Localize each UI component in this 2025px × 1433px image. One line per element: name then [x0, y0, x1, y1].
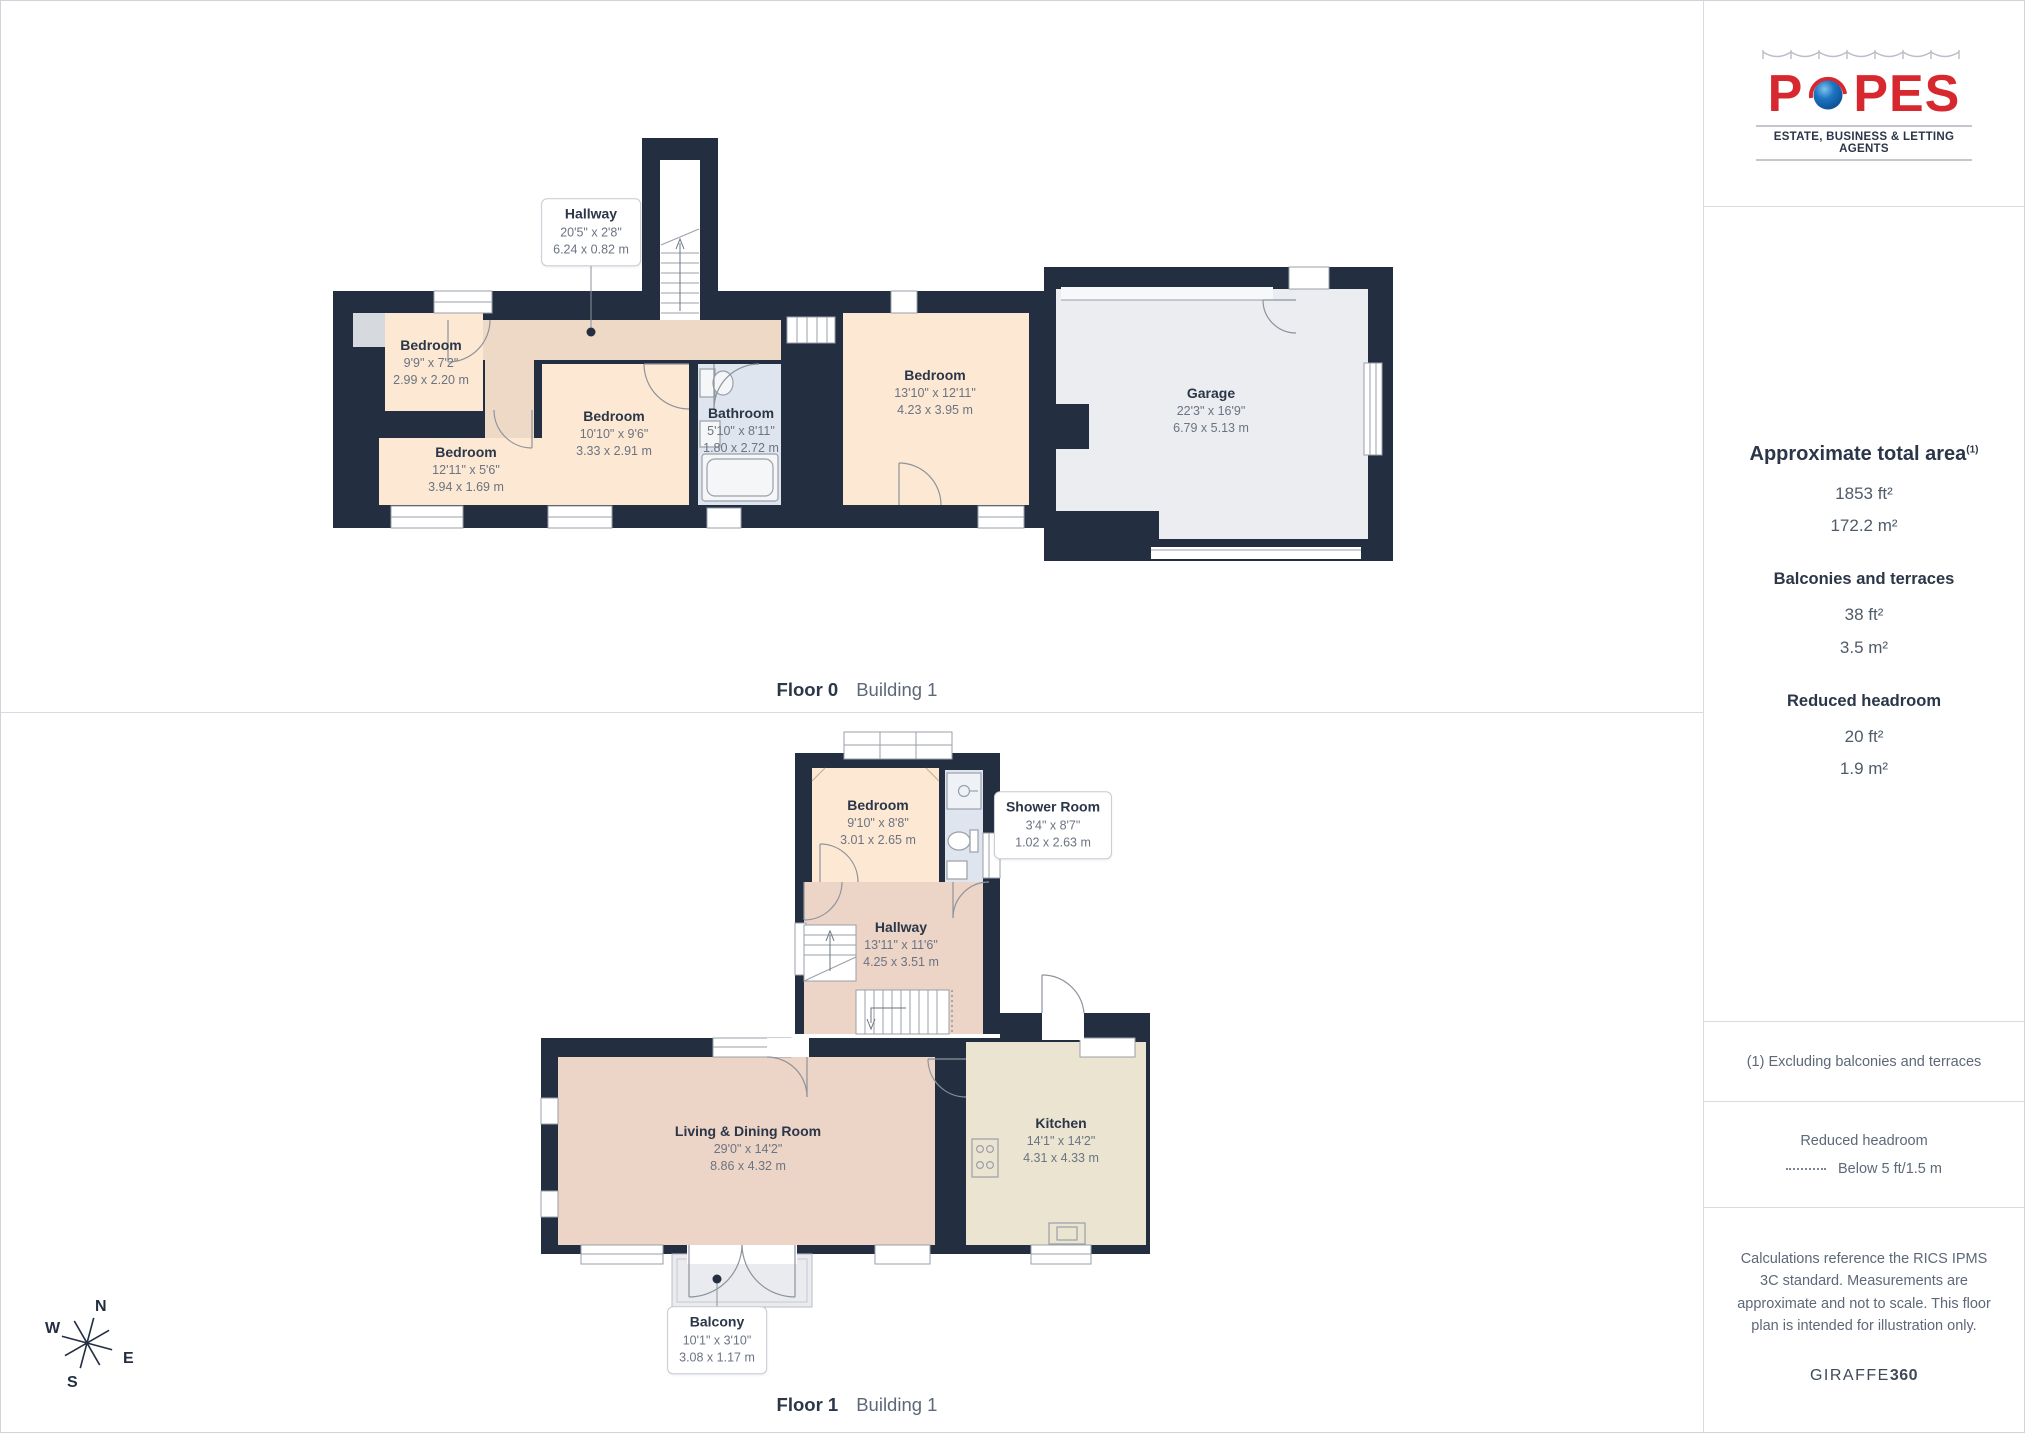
- balconies-title: Balconies and terraces: [1774, 570, 1955, 589]
- hallway-band-fill: [483, 320, 781, 360]
- room-label-bathroom: Bathroom 5'10" x 8'11" 1.80 x 2.72 m: [703, 405, 779, 458]
- main-stairs: [856, 990, 952, 1034]
- room-label-bedroom4: Bedroom 13'10" x 12'11" 4.23 x 3.95 m: [894, 367, 976, 420]
- total-area-m: 172.2 m²: [1830, 510, 1897, 542]
- hallway-branch-fill: [485, 360, 534, 448]
- headroom-m: 1.9 m²: [1840, 753, 1888, 785]
- balcony-callout: Balcony 10'1" x 3'10" 3.08 x 1.17 m: [667, 1306, 767, 1374]
- area-summary: Approximate total area(1) 1853 ft² 172.2…: [1704, 207, 2024, 1021]
- disclaimer-text: Calculations reference the RICS IPMS 3C …: [1732, 1248, 1996, 1338]
- dotted-line-swatch: [1786, 1168, 1826, 1170]
- balconies-m: 3.5 m²: [1840, 632, 1888, 664]
- logo-letter-p: P: [1768, 68, 1804, 120]
- room-label-bedroom2: Bedroom 12'11" x 5'6" 3.94 x 1.69 m: [428, 444, 504, 497]
- logo-tagline: ESTATE, BUSINESS & LETTING AGENTS: [1756, 125, 1972, 161]
- floor1-caption: Floor 1Building 1: [777, 1394, 938, 1416]
- room-label-living: Living & Dining Room 29'0" x 14'2" 8.86 …: [675, 1123, 821, 1176]
- agency-logo: P PES ESTATE, BUSI: [1704, 1, 2024, 207]
- floor0-caption: Floor 0Building 1: [777, 679, 938, 701]
- logo-letters-pes: PES: [1853, 68, 1960, 120]
- room-label-hallway-f1: Hallway 13'11" x 11'6" 4.25 x 3.51 m: [863, 919, 939, 972]
- headroom-title: Reduced headroom: [1787, 692, 1941, 711]
- reduced-headroom-legend: Reduced headroom Below 5 ft/1.5 m: [1704, 1101, 2024, 1207]
- logo-globe-icon: [1804, 70, 1852, 118]
- compass-s: S: [67, 1374, 78, 1391]
- legend-title: Reduced headroom: [1800, 1133, 1927, 1149]
- plans-area: Bedroom 9'9" x 7'2" 2.99 x 2.20 m Bedroo…: [1, 1, 1704, 1432]
- room-label-bedroom1: Bedroom 9'9" x 7'2" 2.99 x 2.20 m: [393, 337, 469, 390]
- balconies-ft: 38 ft²: [1845, 599, 1884, 631]
- upper-stairs: [804, 925, 856, 981]
- info-sidebar: P PES ESTATE, BUSI: [1704, 1, 2024, 1432]
- floorplan-page: Bedroom 9'9" x 7'2" 2.99 x 2.20 m Bedroo…: [0, 0, 2025, 1433]
- compass-w: W: [45, 1320, 61, 1337]
- giraffe360-brand: GIRAFFE360: [1732, 1364, 1996, 1389]
- total-area-ft: 1853 ft²: [1835, 478, 1893, 510]
- shower-room-callout: Shower Room 3'4" x 8'7" 1.02 x 2.63 m: [994, 791, 1112, 859]
- room-label-garage: Garage 22'3" x 16'9" 6.79 x 5.13 m: [1173, 385, 1249, 438]
- compass-e: E: [123, 1350, 134, 1367]
- logo-wordmark: P PES: [1756, 68, 1972, 120]
- porch-fill: [353, 313, 385, 347]
- room-label-kitchen: Kitchen 14'1" x 14'2" 4.31 x 4.33 m: [1023, 1115, 1099, 1168]
- disclaimer: Calculations reference the RICS IPMS 3C …: [1704, 1207, 2024, 1432]
- total-area-title: Approximate total area(1): [1750, 443, 1979, 466]
- legend-label: Below 5 ft/1.5 m: [1838, 1161, 1942, 1177]
- logo-bridge-icon: [1761, 47, 1967, 63]
- compass-n: N: [95, 1298, 107, 1315]
- hallway-callout: Hallway 20'5" x 2'8" 6.24 x 0.82 m: [541, 198, 641, 266]
- landing-stairs: [787, 317, 835, 343]
- room-label-bedroom-f1: Bedroom 9'10" x 8'8" 3.01 x 2.65 m: [840, 797, 916, 850]
- floor1-panel: Bedroom 9'10" x 8'8" 3.01 x 2.65 m Hallw…: [1, 713, 1703, 1432]
- total-area-footnote-marker: (1): [1966, 444, 1978, 455]
- floor0-plan: [1, 1, 1704, 712]
- area-footnote: (1) Excluding balconies and terraces: [1704, 1021, 2024, 1101]
- dormer-window: [844, 732, 952, 759]
- compass-icon: N W E S: [37, 1291, 147, 1401]
- floor0-panel: Bedroom 9'9" x 7'2" 2.99 x 2.20 m Bedroo…: [1, 1, 1703, 713]
- room-label-bedroom3: Bedroom 10'10" x 9'6" 3.33 x 2.91 m: [576, 408, 652, 461]
- headroom-ft: 20 ft²: [1845, 721, 1884, 753]
